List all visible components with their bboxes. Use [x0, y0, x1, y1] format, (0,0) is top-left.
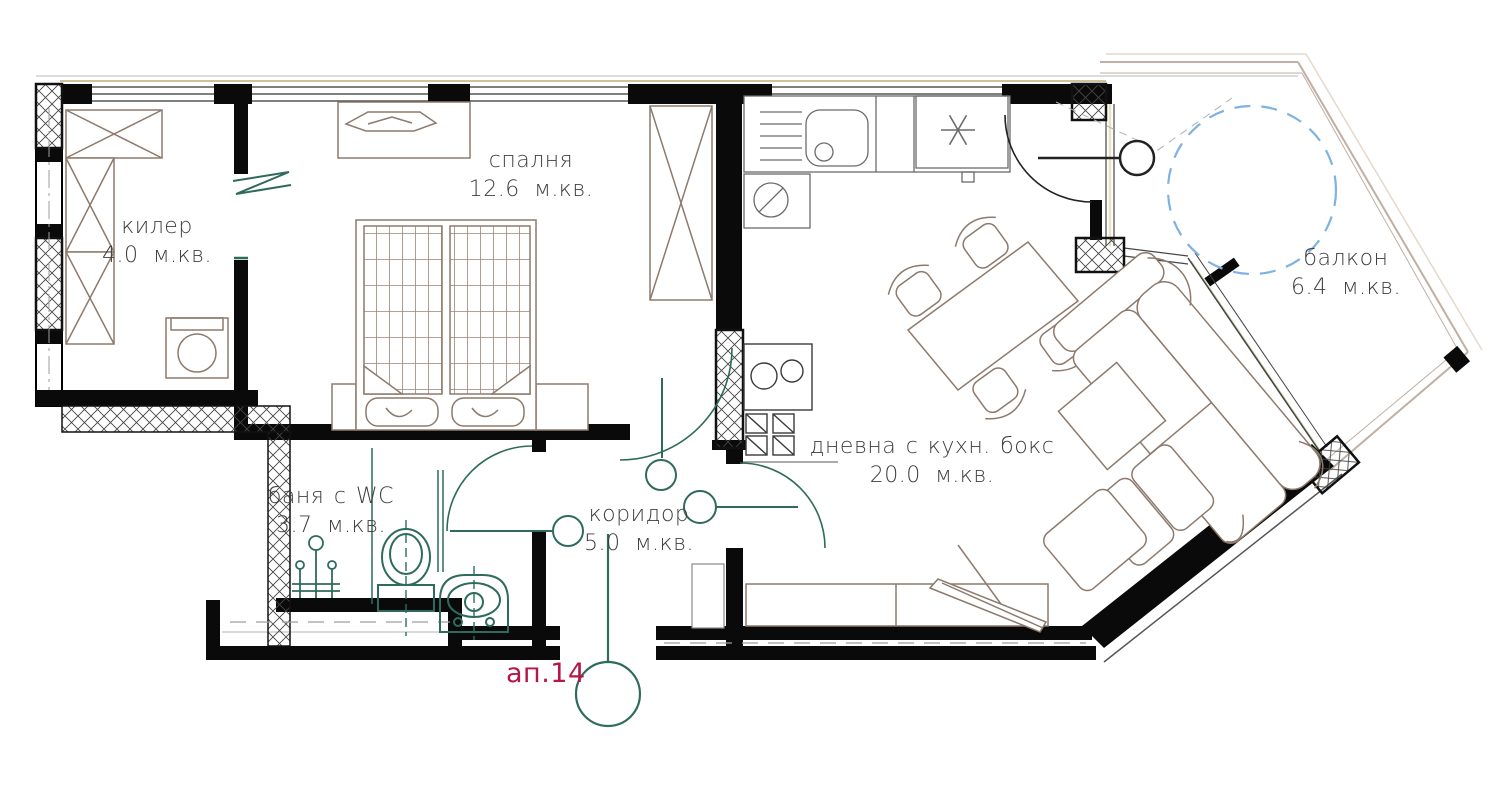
room-area: 20.0 м.кв. — [810, 461, 1055, 490]
room-label-storage: килер 4.0 м.кв. — [102, 212, 212, 270]
kitchen-counter-icon — [744, 96, 1010, 228]
room-area: 3.7 м.кв. — [268, 511, 394, 540]
room-area: 4.0 м.кв. — [102, 241, 212, 270]
bed-icon — [332, 220, 588, 430]
dishwasher-icon — [744, 174, 810, 228]
tall-wardrobe-icon — [650, 106, 712, 300]
folding-door-icon — [233, 172, 291, 194]
room-label-living-kitchen: дневна с кухн. бокс 20.0 м.кв. — [810, 432, 1055, 490]
room-area: 6.4 м.кв. — [1291, 273, 1401, 302]
room-label-bathroom: баня с WC 3.7 м.кв. — [268, 482, 394, 540]
room-name: коридор — [584, 500, 694, 529]
room-name: балкон — [1291, 244, 1401, 273]
towel-radiator-icon — [292, 536, 340, 598]
cabinet-icon — [692, 564, 724, 628]
room-name: баня с WC — [268, 482, 394, 511]
entry-door-marker — [576, 534, 640, 726]
room-label-balcony: балкон 6.4 м.кв. — [1291, 244, 1401, 302]
room-name: дневна с кухн. бокс — [810, 432, 1055, 461]
floor-plan: килер 4.0 м.кв. спалня 12.6 м.кв. баня с… — [0, 0, 1509, 798]
living-room-door-arc — [684, 463, 825, 548]
washing-machine-icon — [166, 318, 228, 378]
tv-cabinet-icon — [746, 545, 1048, 632]
room-area: 12.6 м.кв. — [469, 175, 594, 204]
room-name: спалня — [469, 146, 594, 175]
apartment-number-label: ап.14 — [506, 658, 586, 689]
stove-icon — [744, 344, 812, 455]
room-label-corridor: коридор 5.0 м.кв. — [584, 500, 694, 558]
room-area: 5.0 м.кв. — [584, 529, 694, 558]
room-label-bedroom: спалня 12.6 м.кв. — [469, 146, 594, 204]
floor-plan-drawing — [0, 0, 1509, 798]
bathroom-door-arc — [447, 446, 583, 546]
room-name: килер — [102, 212, 212, 241]
dresser-tv-icon — [338, 102, 470, 158]
balcony-door-arc — [1005, 115, 1154, 202]
